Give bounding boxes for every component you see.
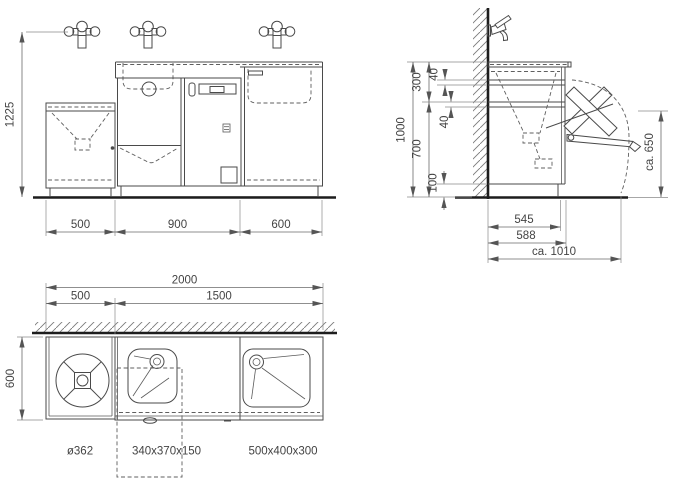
dim-side-upper: 300 <box>412 72 424 91</box>
faucet-front-icon <box>259 21 295 48</box>
plan-dimensions: 2000 500 1500 600 ø362 340x370x150 500x4… <box>5 275 323 458</box>
machine-panel <box>185 78 242 186</box>
side-view: 1000 300 700 40 40 100 ca. 650 545 <box>396 8 669 263</box>
dim-plan-total-width: 2000 <box>172 275 198 287</box>
middle-unit-front <box>118 67 323 197</box>
left-door <box>118 78 182 186</box>
faucet-side-icon <box>488 16 512 41</box>
service-hatch <box>221 167 237 183</box>
label-round-outlet: ø362 <box>67 446 93 458</box>
left-cabinet-front <box>46 103 115 197</box>
wall-hatch <box>473 8 488 197</box>
side-dimensions: 1000 300 700 40 40 100 ca. 650 545 <box>396 62 669 263</box>
dim-side-plinth: 100 <box>428 173 440 192</box>
dim-side-depth-outer: 588 <box>516 230 535 242</box>
vent-icon <box>223 124 230 132</box>
dim-plan-right-width: 1500 <box>206 291 232 303</box>
dim-side-depth-inner: 545 <box>514 214 533 226</box>
right-basin-plan <box>243 349 310 407</box>
dim-side-depth-total: ca. 1010 <box>532 246 576 258</box>
right-cabinet-front <box>245 67 323 186</box>
label-right-basin: 500x400x300 <box>248 446 317 458</box>
dim-side-rail-top: 40 <box>429 68 441 81</box>
dim-side-flap-height: ca. 650 <box>644 133 656 171</box>
switch <box>189 83 195 96</box>
dim-front-width-right: 600 <box>271 219 290 231</box>
center-basin-plan <box>128 349 177 403</box>
dim-front-total-height: 1225 <box>5 102 17 128</box>
hinge-pivot <box>568 135 574 141</box>
hopper-hidden-outline <box>120 148 178 163</box>
drain-hole <box>77 375 88 386</box>
front-dimensions: 1225 500 900 600 <box>5 32 323 236</box>
dim-front-width-middle: 900 <box>168 219 187 231</box>
dim-side-rail-mid: 40 <box>439 116 451 129</box>
front-view: 1225 500 900 600 <box>5 21 337 236</box>
door-knob <box>111 146 115 150</box>
label-center-basin: 340x370x150 <box>132 446 201 458</box>
dim-plan-left-width: 500 <box>71 291 90 303</box>
plinth <box>50 188 111 197</box>
round-outlet-unit-plan <box>46 337 115 419</box>
technical-drawing-page: 1225 500 900 600 <box>0 0 680 497</box>
fold-out-flap <box>546 80 641 193</box>
plan-view: 2000 500 1500 600 ø362 340x370x150 500x4… <box>5 275 337 478</box>
sink-hidden-outline <box>123 63 173 89</box>
plinth <box>121 186 318 197</box>
dim-side-lower: 700 <box>412 139 424 158</box>
fold-out-flap-footprint <box>117 368 182 477</box>
dim-side-total-height: 1000 <box>396 117 408 143</box>
basin-hidden-outline <box>248 69 311 103</box>
wall-hatch <box>35 322 335 333</box>
counter-top-front <box>116 62 323 186</box>
door-handle <box>249 71 263 75</box>
faucet-front-icon <box>64 21 100 48</box>
drawing-canvas: 1225 500 900 600 <box>0 0 680 497</box>
dim-front-width-left: 500 <box>71 219 90 231</box>
cabinet-side <box>488 62 571 197</box>
faucet-front-icon <box>130 21 166 48</box>
dim-plan-depth: 600 <box>5 369 17 388</box>
